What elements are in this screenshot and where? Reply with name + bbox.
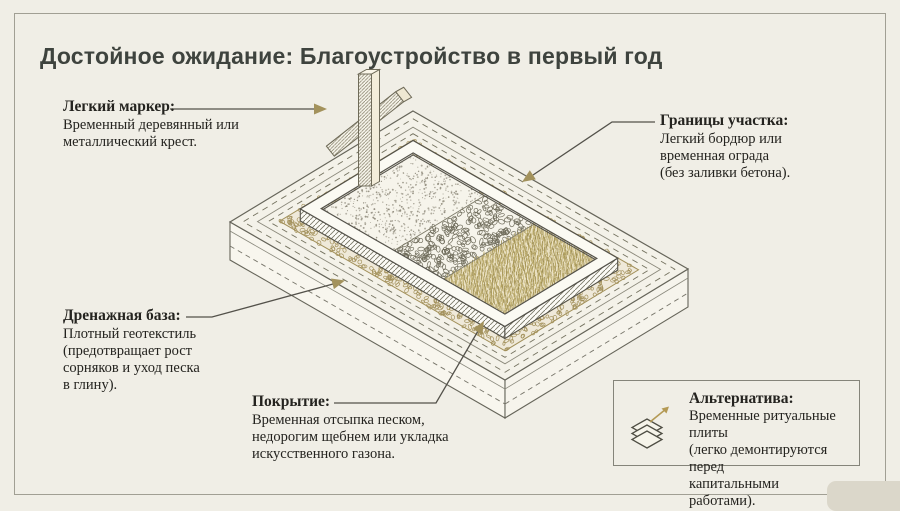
callout-borders-body: Легкий бордюр или временная ограда (без … [660, 131, 790, 182]
callout-cover: Покрытие: Временная отсыпка песком, недо… [252, 394, 449, 463]
callout-marker-heading: Легкий маркер: [63, 99, 239, 115]
bottom-right-overlay [827, 481, 900, 511]
callout-borders-heading: Границы участка: [660, 113, 790, 129]
callout-cover-heading: Покрытие: [252, 394, 449, 410]
callout-drainage: Дренажная база: Плотный геотекстиль (пре… [63, 308, 200, 394]
alternative-body: Временные ритуальные плиты (легко демонт… [689, 408, 849, 510]
callout-marker-body: Временный деревянный или металлический к… [63, 117, 239, 151]
callout-cover-body: Временная отсыпка песком, недорогим щебн… [252, 412, 449, 463]
alternative-box: Альтернатива: Временные ритуальные плиты… [613, 380, 860, 466]
callout-drainage-heading: Дренажная база: [63, 308, 200, 324]
infographic-page: { "title": "Достойное ожидание: Благоуст… [0, 0, 900, 487]
callout-marker: Легкий маркер: Временный деревянный или … [63, 99, 239, 151]
alternative-heading: Альтернатива: [689, 390, 849, 407]
layers-icon [626, 398, 678, 450]
callout-drainage-body: Плотный геотекстиль (предотвращает рост … [63, 326, 200, 394]
page-title: Достойное ожидание: Благоустройство в пе… [40, 41, 663, 71]
callout-borders: Границы участка: Легкий бордюр или време… [660, 113, 790, 182]
